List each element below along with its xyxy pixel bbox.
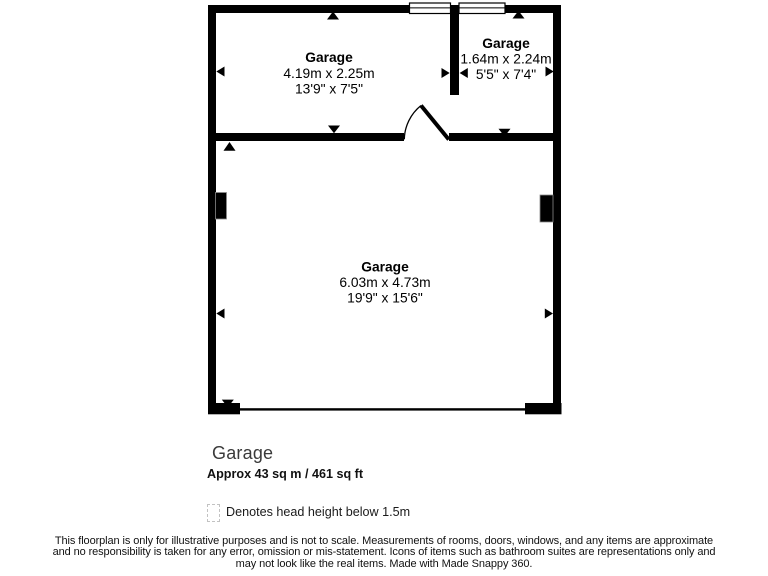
head-height-legend-box-icon (207, 504, 220, 522)
floorplan-page: Garage 4.19m x 2.25m 13'9" x 7'5" Garage… (0, 0, 768, 576)
dimension-arrow-right-icon (545, 309, 553, 319)
dimension-arrow-left-icon (216, 309, 224, 319)
wall-left (208, 5, 216, 414)
room-1-name: Garage (305, 50, 353, 65)
wall-bottom-right-stub (525, 403, 562, 414)
room-3-dims-imperial: 19'9" x 15'6" (347, 291, 423, 306)
room-2-dims-metric: 1.64m x 2.24m (460, 52, 551, 67)
wall-top (208, 5, 561, 13)
disclaimer-text: This floorplan is only for illustrative … (0, 536, 768, 570)
plan-area-total: Approx 43 sq m / 461 sq ft (207, 467, 363, 481)
room-1-dims-metric: 4.19m x 2.25m (283, 66, 374, 81)
window-icon (410, 3, 451, 14)
pillar-left (216, 193, 227, 220)
dimension-arrow-right-icon (546, 67, 554, 77)
pillars (216, 193, 554, 223)
plan-title: Garage (212, 443, 273, 464)
room-2-dims-imperial: 5'5" x 7'4" (476, 67, 536, 82)
dimension-arrow-down-icon (328, 126, 340, 134)
wall-divider-vertical (450, 5, 459, 95)
room-3-name: Garage (361, 260, 409, 275)
room-labels: Garage 4.19m x 2.25m 13'9" x 7'5" Garage… (283, 36, 551, 306)
room-1-dims-imperial: 13'9" x 7'5" (295, 82, 363, 97)
garage-door-opening-line (240, 408, 525, 410)
dimension-arrow-up-icon (224, 142, 236, 151)
disclaimer-line-3: may not look like the real items. Made w… (0, 559, 768, 570)
floorplan-drawing: Garage 4.19m x 2.25m 13'9" x 7'5" Garage… (0, 0, 768, 576)
wall-mid-left-segment (208, 133, 404, 141)
door-swing-icon (404, 106, 449, 140)
room-2-name: Garage (482, 36, 530, 51)
dimension-arrow-right-icon (442, 68, 450, 78)
dimension-arrow-left-icon (216, 67, 224, 77)
dimension-arrow-left-icon (460, 68, 468, 78)
wall-bottom-left-stub (208, 403, 240, 414)
wall-right (553, 5, 561, 414)
room-3-dims-metric: 6.03m x 4.73m (339, 275, 430, 290)
legend-label: Denotes head height below 1.5m (226, 505, 410, 519)
window-icon (459, 3, 505, 14)
pillar-right (540, 195, 553, 222)
